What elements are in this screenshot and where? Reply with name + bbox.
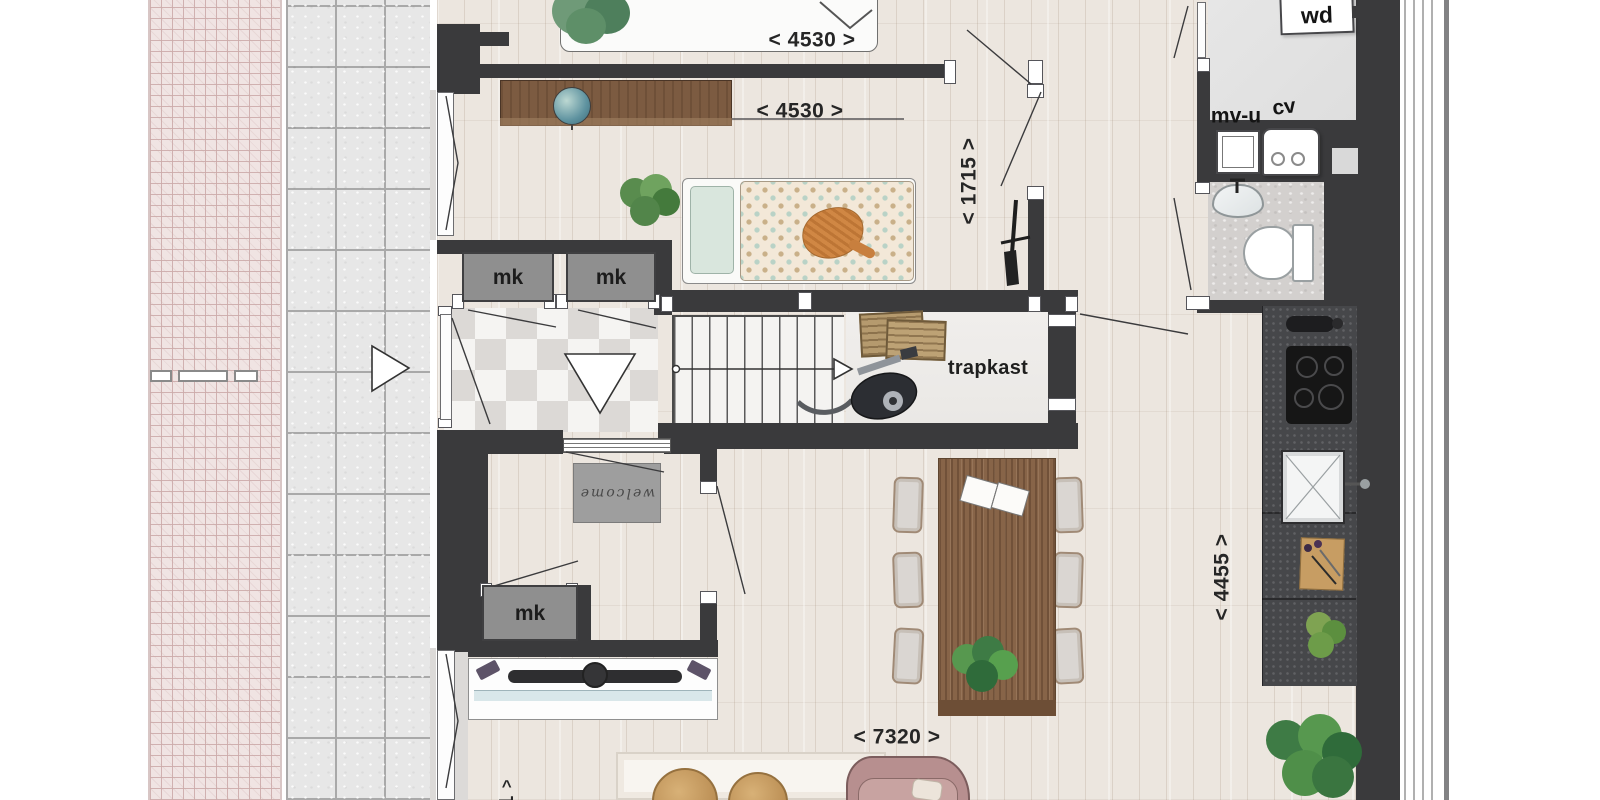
boundary-dash xyxy=(234,370,258,382)
boundary-dash xyxy=(178,370,228,382)
hob-burner xyxy=(1318,384,1344,410)
dining-chair xyxy=(892,476,924,533)
staircase xyxy=(672,315,844,425)
meter-closet-3: mk xyxy=(482,585,578,641)
toilet-cistern xyxy=(1292,224,1314,282)
counter-plant xyxy=(1308,632,1334,658)
cut-dimension-digit: 1 xyxy=(497,795,517,800)
dimension-bedroom1-width: < 4530 > xyxy=(769,30,856,51)
door-jamb xyxy=(1048,398,1076,411)
exterior-wall-right xyxy=(1356,0,1400,800)
cut-dimension-marker: ^ xyxy=(502,778,512,795)
dimension-living-width: < 7320 > xyxy=(854,727,941,748)
meter-closet-2-label: mk xyxy=(596,267,626,288)
facade-section-line-heavy xyxy=(1444,0,1449,800)
door-jamb xyxy=(1197,58,1210,72)
wall-nub xyxy=(1352,6,1362,18)
door-jamb xyxy=(944,60,956,84)
hall-marble-floor xyxy=(444,308,658,432)
meter-closet-1-label: mk xyxy=(493,267,523,288)
desk-front-edge xyxy=(500,118,732,126)
living-window xyxy=(437,650,455,800)
kitchen-faucet xyxy=(1286,316,1334,332)
wall-segment xyxy=(660,290,1078,312)
tech-room-door-leaf xyxy=(1197,2,1206,58)
boiler-dial xyxy=(1271,152,1285,166)
dining-chair xyxy=(1052,627,1085,684)
cutting-board xyxy=(1299,537,1345,591)
sofa-seat xyxy=(858,778,958,800)
door-jamb xyxy=(1195,182,1210,194)
door-jamb xyxy=(1065,296,1078,312)
welcome-mat: welcome xyxy=(573,463,661,523)
table-plant xyxy=(966,660,998,692)
bathroom-sink xyxy=(1212,184,1264,218)
dining-chair xyxy=(1052,476,1084,533)
window-sill xyxy=(430,90,436,240)
kitchen-faucet-knob xyxy=(1332,318,1343,329)
doormat xyxy=(885,319,946,361)
wall-segment xyxy=(577,585,591,647)
dining-table-end xyxy=(938,700,1056,716)
wall-segment xyxy=(658,423,1078,449)
hob-burner xyxy=(1296,356,1318,378)
stair-closet-label: trapkast xyxy=(948,358,1028,378)
wall-segment xyxy=(1324,170,1356,302)
brick-walkway xyxy=(148,0,282,800)
entrance-threshold xyxy=(563,438,671,453)
bed-plant xyxy=(566,8,606,44)
stone-tile-path xyxy=(286,0,430,800)
mechanical-ventilation-label: mv-u xyxy=(1211,106,1261,127)
wall-segment xyxy=(700,449,717,483)
central-heating-boiler xyxy=(1262,128,1320,176)
wall-segment xyxy=(480,64,944,78)
wall-niche xyxy=(1332,148,1358,174)
toilet-bowl xyxy=(1243,226,1297,280)
sofa-cushion xyxy=(911,778,943,800)
wall-segment xyxy=(437,430,488,656)
window-sill xyxy=(430,648,436,800)
potted-plant xyxy=(630,196,660,226)
front-door-leaf xyxy=(440,314,452,420)
globe xyxy=(553,87,591,125)
dining-chair xyxy=(1052,551,1084,608)
dining-chair xyxy=(892,627,925,684)
facade-section-lines xyxy=(1404,0,1438,800)
door-jamb xyxy=(798,292,812,310)
central-heating-label: cv xyxy=(1271,95,1297,119)
mechanical-ventilation-unit xyxy=(1216,130,1260,174)
floor-plan-canvas: mk mk mk welcome xyxy=(0,0,1600,800)
door-jamb xyxy=(1186,296,1210,310)
wall-segment xyxy=(664,436,717,454)
bed-2-pillow xyxy=(690,186,734,274)
dining-chair xyxy=(892,551,924,608)
tv-sideboard-glass-shelf xyxy=(474,690,712,701)
meter-closet-3-label: mk xyxy=(515,603,545,624)
door-jamb xyxy=(700,481,717,494)
dimension-kitchen-depth: < 4455 > xyxy=(1212,534,1233,621)
wall-segment xyxy=(437,430,563,454)
hob-burner xyxy=(1294,388,1314,408)
meter-closet-1: mk xyxy=(462,252,554,302)
kitchen-sink xyxy=(1281,450,1345,524)
door-jamb xyxy=(700,591,717,604)
meter-closet-2: mk xyxy=(566,252,656,302)
door-jamb xyxy=(661,296,673,312)
bedroom-window xyxy=(437,92,454,236)
dimension-bedroom2-width: < 4530 > xyxy=(757,101,844,122)
washer-dryer-label: wd xyxy=(1301,3,1334,27)
door-jamb xyxy=(1028,296,1041,312)
door-jamb xyxy=(1048,314,1076,327)
dimension-door-zone: < 1715 > xyxy=(959,138,980,225)
welcome-mat-text: welcome xyxy=(579,486,656,500)
boiler-dial xyxy=(1291,152,1305,166)
door-jamb xyxy=(1027,186,1044,200)
hob xyxy=(1286,346,1352,424)
hob-burner xyxy=(1324,356,1344,376)
wall-segment xyxy=(473,32,509,46)
monstera-plant xyxy=(1312,756,1354,798)
door-jamb xyxy=(1028,60,1043,84)
boundary-dash xyxy=(150,370,172,382)
counter-seam xyxy=(1262,598,1356,600)
interior-window-strip xyxy=(455,652,468,800)
door-jamb xyxy=(1027,84,1044,98)
washer-dryer: wd xyxy=(1279,0,1354,35)
tv-center-disc xyxy=(582,662,608,688)
